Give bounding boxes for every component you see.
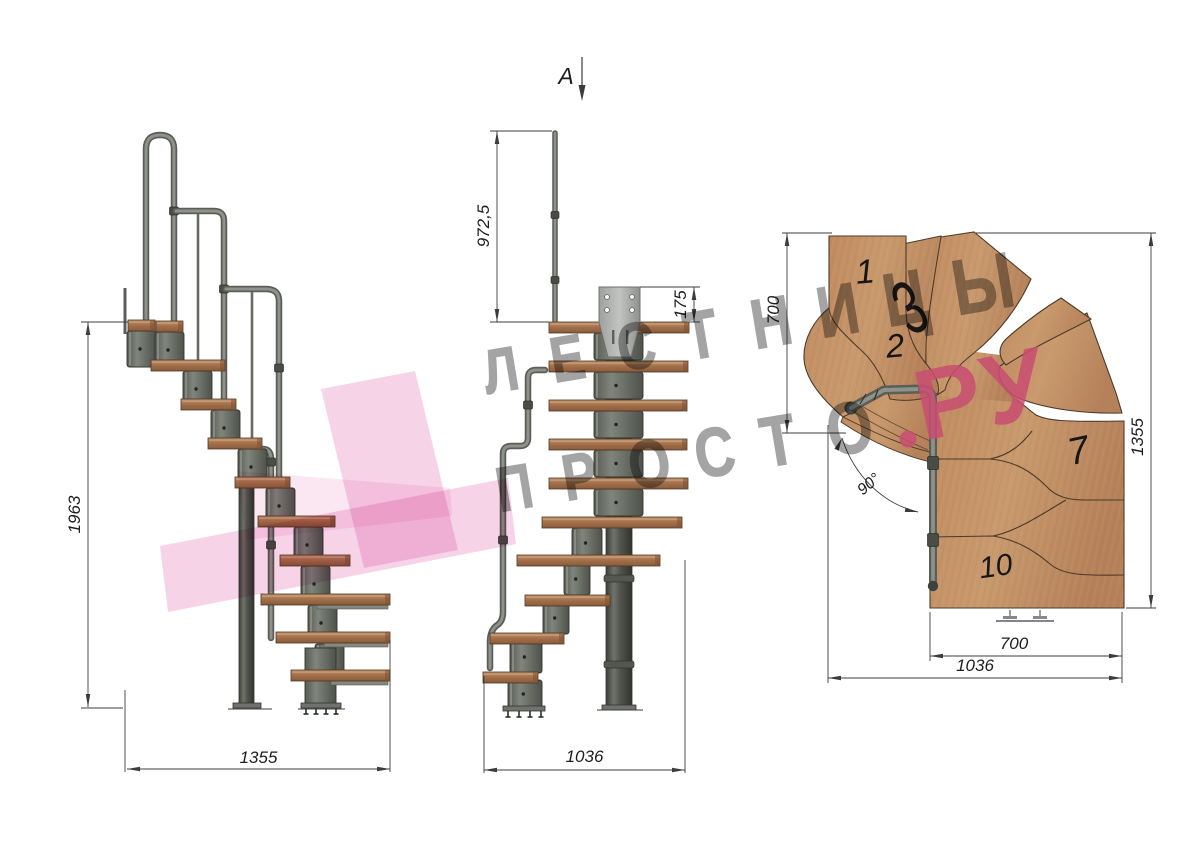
svg-text:90°: 90° [854,470,884,499]
svg-text:1036: 1036 [956,656,994,675]
svg-text:1355: 1355 [1128,418,1147,456]
svg-text:1963: 1963 [65,495,84,533]
svg-text:A: A [556,63,573,89]
svg-text:1355: 1355 [240,748,278,767]
svg-text:1: 1 [854,252,876,292]
svg-text:700: 700 [1000,634,1029,653]
svg-text:972,5: 972,5 [474,204,493,247]
svg-text:10: 10 [977,548,1015,585]
svg-text:1036: 1036 [566,747,604,766]
